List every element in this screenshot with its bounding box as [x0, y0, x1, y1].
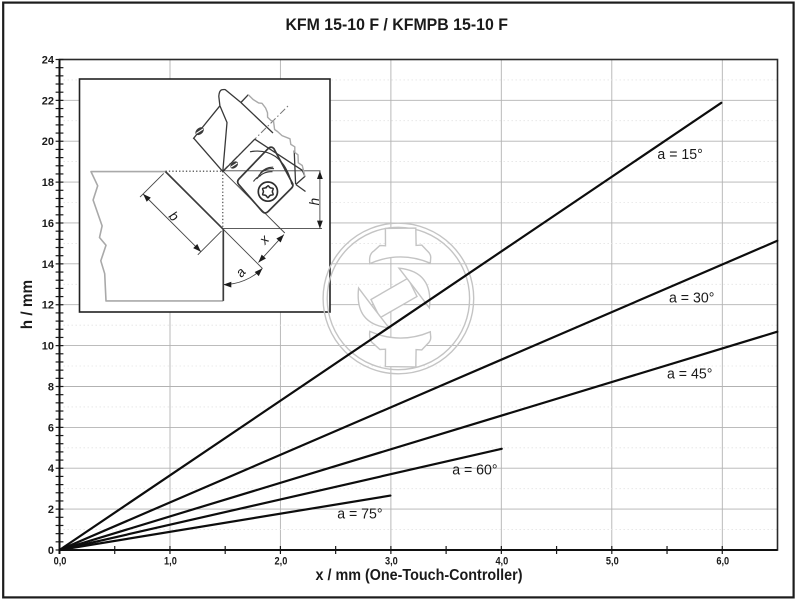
svg-text:6: 6: [48, 422, 54, 434]
svg-text:a = 30°: a = 30°: [669, 290, 714, 306]
svg-text:8: 8: [48, 381, 54, 393]
svg-text:a = 15°: a = 15°: [657, 147, 702, 163]
svg-text:4,0: 4,0: [495, 556, 508, 568]
svg-text:KFM 15-10 F / KFMPB 15-10 F: KFM 15-10 F / KFMPB 15-10 F: [285, 16, 508, 34]
svg-text:h / mm: h / mm: [19, 280, 36, 329]
svg-text:10: 10: [42, 341, 54, 353]
svg-text:h: h: [307, 198, 322, 206]
svg-text:4: 4: [48, 463, 55, 475]
svg-text:a = 45°: a = 45°: [667, 367, 712, 383]
svg-text:0,0: 0,0: [54, 556, 67, 568]
svg-text:a = 60°: a = 60°: [452, 462, 497, 478]
svg-text:16: 16: [42, 218, 54, 230]
svg-text:5,0: 5,0: [606, 556, 619, 568]
svg-text:6,0: 6,0: [716, 556, 729, 568]
svg-text:x / mm (One-Touch-Controller): x / mm (One-Touch-Controller): [316, 567, 523, 584]
svg-text:2: 2: [48, 504, 54, 516]
svg-text:2,0: 2,0: [275, 556, 288, 568]
svg-text:18: 18: [42, 177, 54, 189]
svg-text:24: 24: [42, 54, 55, 66]
svg-text:22: 22: [42, 95, 54, 107]
svg-text:a = 75°: a = 75°: [337, 507, 382, 523]
svg-text:12: 12: [42, 300, 54, 312]
svg-text:20: 20: [42, 136, 54, 148]
svg-text:14: 14: [42, 259, 55, 271]
svg-text:3,0: 3,0: [385, 556, 398, 568]
svg-text:1,0: 1,0: [164, 556, 177, 568]
